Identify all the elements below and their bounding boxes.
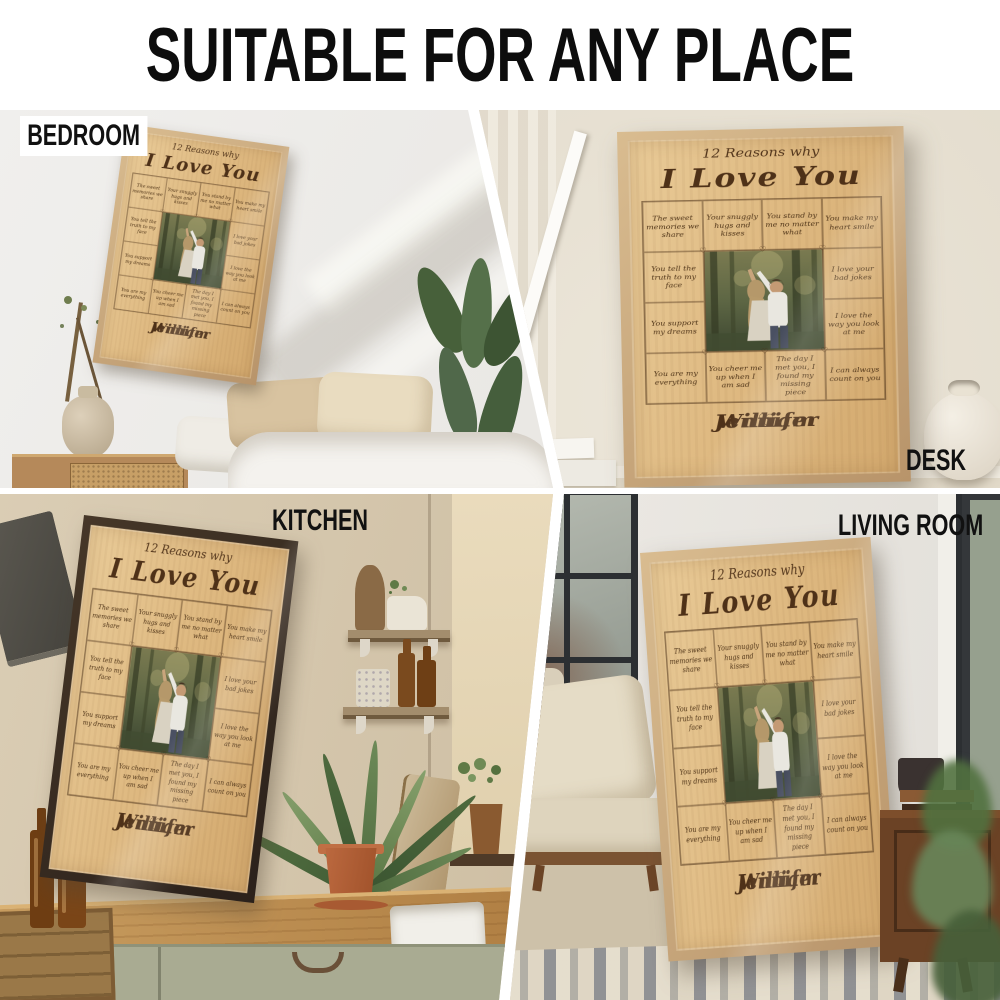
poster-kitchen: 12 Reasons why I Love You The sweet memo… <box>40 515 299 903</box>
reason-cell: I love your bad jokes <box>214 657 265 714</box>
reason-cell: You support my dreams <box>119 241 158 280</box>
heart-knob-icon <box>714 682 721 691</box>
heart-knob-icon <box>761 348 769 355</box>
heart-knob-icon <box>699 247 707 254</box>
couple-photo <box>119 646 221 760</box>
windowsill-plant <box>458 762 470 774</box>
heart-knob-icon <box>217 652 224 660</box>
label-desk: DESK <box>906 444 966 478</box>
reason-cell: You cheer me up when I am sad <box>112 749 163 806</box>
reason-cell: Your snuggly hugs and kisses <box>162 178 201 217</box>
heart-knob-icon <box>205 756 212 764</box>
leaf-sprigs <box>64 296 72 304</box>
amber-bottle <box>398 653 415 707</box>
poster-paper: 12 Reasons why I Love You The sweet memo… <box>628 135 901 479</box>
heart-knob-icon <box>762 679 769 688</box>
heart-knob-icon <box>115 745 122 753</box>
couple-photo <box>717 680 821 803</box>
reason-cell: You stand by me no matter what <box>176 600 227 657</box>
reason-cell: You tell the truth to my face <box>123 207 162 246</box>
heart-knob-icon <box>821 346 829 353</box>
heart-knob-icon <box>770 796 777 805</box>
heart-knob-icon <box>218 287 223 292</box>
reason-cell: You make my heart smile <box>821 197 882 249</box>
label-bedroom: BEDROOM <box>20 116 147 156</box>
reason-cell: I can always count on you <box>216 289 255 328</box>
header-banner: SUITABLE FOR ANY PLACE <box>0 0 1000 110</box>
poster-paper: 12 Reasons why I Love You The sweet memo… <box>649 547 890 950</box>
heart-knob-icon <box>194 214 199 219</box>
brown-jug <box>355 565 385 630</box>
reason-cell: The sweet memories we share <box>87 589 138 646</box>
reason-cell: I can always count on you <box>202 760 253 817</box>
name-right: Jennifer <box>714 407 818 432</box>
windowsill-pot <box>468 804 504 856</box>
heart-knob-icon <box>818 793 825 802</box>
reason-cell: You cheer me up when I am sad <box>148 280 187 319</box>
bed-duvet <box>228 432 558 490</box>
name-right: Jennifer <box>115 808 196 841</box>
label-living-room: LIVING ROOM <box>838 509 983 543</box>
reason-cell: You make my heart smile <box>809 619 861 680</box>
reason-cell: The sweet memories we share <box>665 629 717 690</box>
poster-bedroom: 12 Reasons why I Love You The sweet memo… <box>92 124 289 385</box>
heart-knob-icon <box>160 209 165 214</box>
heart-knob-icon <box>701 349 709 356</box>
reason-cell: You tell the truth to my face <box>669 687 721 748</box>
header-title: SUITABLE FOR ANY PLACE <box>146 12 854 99</box>
reason-cell: I love the way you look at me <box>221 255 260 294</box>
reason-cell: I love the way you look at me <box>208 708 259 765</box>
poster-title-line2: I Love You <box>628 159 894 195</box>
name-right: Jennifer <box>150 319 211 343</box>
reason-cell: You are my everything <box>677 803 729 864</box>
reason-cell: You tell the truth to my face <box>643 251 704 303</box>
reason-cell: Your snuggly hugs and kisses <box>713 626 765 687</box>
couple-names: William ♡ Jennifer <box>634 417 899 423</box>
heart-knob-icon <box>759 246 767 253</box>
reason-cell: You are my everything <box>114 275 153 314</box>
poster-paper: 12 Reasons why I Love You The sweet memo… <box>49 525 290 893</box>
reason-cell: You make my heart smile <box>221 605 272 662</box>
reason-cell: The day I met you, I found my missing pi… <box>773 797 825 858</box>
puzzle-grid: The sweet memories we share Your snuggly… <box>67 588 273 818</box>
pattern-jar <box>356 669 390 707</box>
reason-cell: I love the way you look at me <box>817 735 869 796</box>
puzzle-grid: The sweet memories we share Your snuggly… <box>641 196 886 405</box>
heart-knob-icon <box>228 218 233 223</box>
heart-knob-icon <box>184 282 189 287</box>
foreground-plant <box>912 760 1000 1000</box>
love-poster: 12 Reasons why I Love You The sweet memo… <box>92 124 289 385</box>
reason-cell: The sweet memories we share <box>642 201 703 253</box>
white-pitcher <box>387 596 427 630</box>
reason-cell: The day I met you, I found my missing pi… <box>157 754 208 811</box>
poster-paper: 12 Reasons why I Love You The sweet memo… <box>99 131 282 379</box>
reason-cell: Your snuggly hugs and kisses <box>131 594 182 651</box>
reason-cell: I love the way you look at me <box>823 298 884 350</box>
couple-names: William ♡ Jennifer <box>56 812 255 836</box>
reason-cell: I love your bad jokes <box>813 677 865 738</box>
poster-living-room: 12 Reasons why I Love You The sweet memo… <box>640 537 899 962</box>
heart-knob-icon <box>128 641 135 649</box>
reason-cell: I can always count on you <box>821 793 873 854</box>
puzzle-grid: The sweet memories we share Your snuggly… <box>113 172 269 328</box>
reason-cell: I love your bad jokes <box>822 247 883 299</box>
reason-cell: You support my dreams <box>74 692 125 749</box>
couple-photo <box>153 212 231 289</box>
reason-cell: You stand by me no matter what <box>762 198 823 250</box>
reason-cell: You are my everything <box>68 743 119 800</box>
heart-knob-icon <box>160 751 167 759</box>
love-poster: 12 Reasons why I Love You The sweet memo… <box>640 537 899 962</box>
rattan-drawer <box>70 463 184 490</box>
love-poster: 12 Reasons why I Love You The sweet memo… <box>40 515 299 903</box>
couple-photo <box>703 249 824 353</box>
poster-desk: 12 Reasons why I Love You The sweet memo… <box>617 126 911 487</box>
reason-cell: Your snuggly hugs and kisses <box>702 199 763 251</box>
reason-cell: I can always count on you <box>825 348 886 400</box>
shelf-plant <box>390 580 399 589</box>
reason-cell: You cheer me up when I am sad <box>705 351 766 403</box>
love-poster: 12 Reasons why I Love You The sweet memo… <box>617 126 911 487</box>
heart-knob-icon <box>809 676 816 685</box>
label-kitchen: KITCHEN <box>272 504 368 538</box>
reason-cell: You support my dreams <box>644 302 705 354</box>
reason-cell: You make my heart smile <box>230 187 269 226</box>
amber-bottle <box>417 660 436 707</box>
reason-cell: You stand by me no matter what <box>761 622 813 683</box>
heart-knob-icon <box>818 245 826 252</box>
heart-knob-icon <box>722 800 729 809</box>
reason-cell: You cheer me up when I am sad <box>725 800 777 861</box>
armchair-base <box>504 852 686 865</box>
reason-cell: You are my everything <box>646 352 707 404</box>
puzzle-grid: The sweet memories we share Your snuggly… <box>664 618 874 866</box>
reason-cell: You support my dreams <box>673 745 725 806</box>
pot-saucer <box>314 900 388 910</box>
reason-cell: The day I met you, I found my missing pi… <box>182 284 221 323</box>
reason-cell: The day I met you, I found my missing pi… <box>765 350 826 402</box>
ceramic-vase <box>62 396 114 458</box>
reason-cell: You tell the truth to my face <box>80 640 131 697</box>
product-collage: SUITABLE FOR ANY PLACE <box>0 0 1000 1000</box>
name-right: Jennifer <box>736 863 821 895</box>
couple-names: William ♡ Jennifer <box>672 872 886 887</box>
heart-knob-icon <box>150 277 155 282</box>
reason-cell: I love your bad jokes <box>226 221 265 260</box>
reason-cell: The sweet memories we share <box>128 173 167 212</box>
room-collage: 12 Reasons why I Love You The sweet memo… <box>0 110 1000 1000</box>
reason-cell: You stand by me no matter what <box>196 183 235 222</box>
heart-knob-icon <box>173 647 180 655</box>
